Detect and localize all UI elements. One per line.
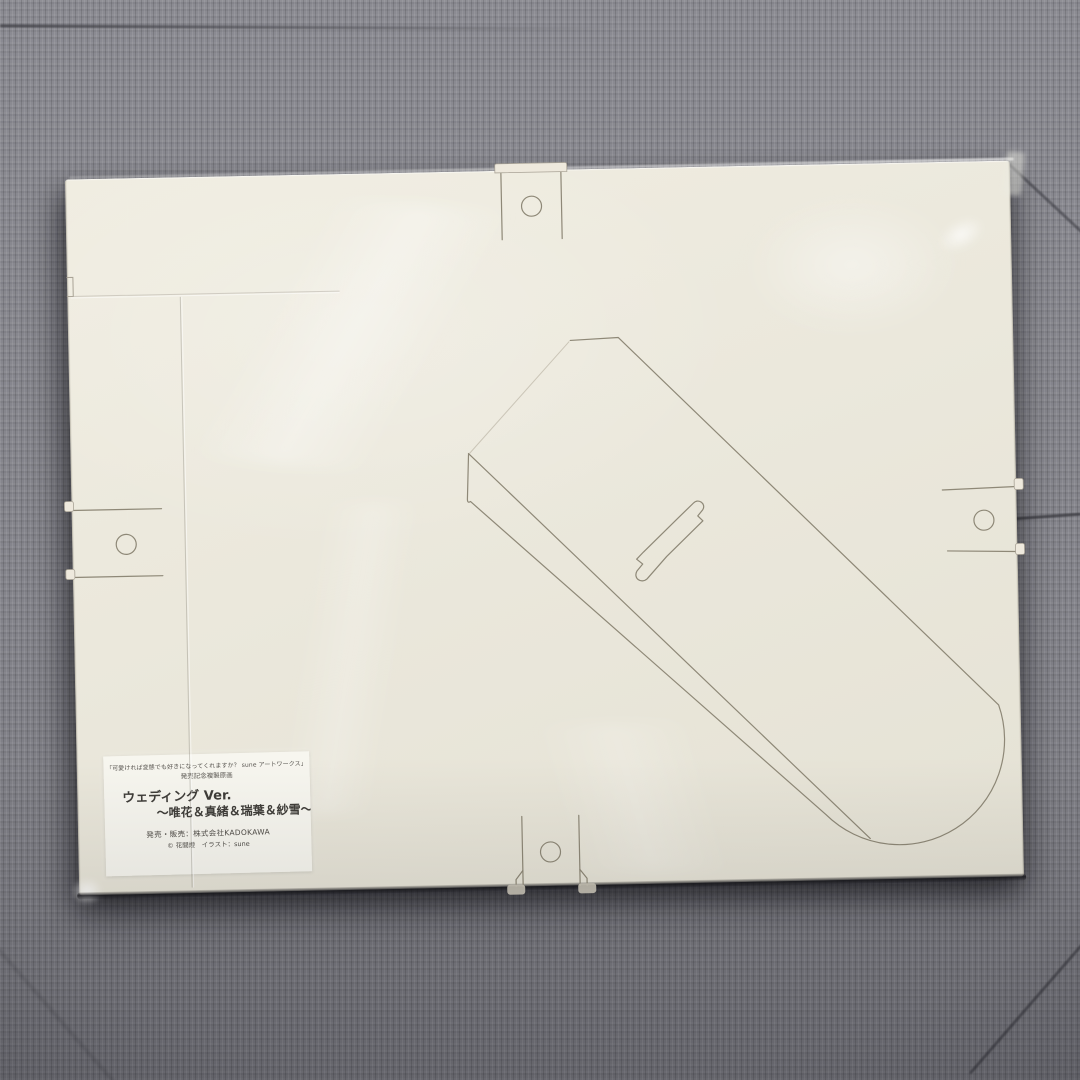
carpet-seam-bottom-right — [969, 943, 1080, 1075]
sleeve-crease-vertical-highlight — [182, 297, 194, 887]
left-tab-nub — [64, 501, 73, 511]
bottom-tab-foot — [507, 884, 525, 894]
stand-inner-cut — [468, 446, 870, 847]
sleeve-crease-vertical — [180, 297, 192, 887]
left-tab-nub — [66, 569, 75, 579]
carpet-seam-top — [0, 24, 620, 30]
right-tab-nub — [1014, 478, 1023, 489]
bottom-tab-hole — [540, 842, 560, 862]
right-tab-cut — [942, 487, 1017, 553]
right-tab-nub — [1015, 543, 1024, 554]
left-edge-notch-cut — [67, 277, 73, 296]
die-cut-linework — [65, 161, 1024, 896]
top-tab-hole — [521, 196, 541, 216]
top-tab-cut — [501, 170, 562, 240]
left-tab-cut — [72, 509, 163, 578]
top-tab-nub — [495, 162, 567, 172]
left-tab-hole — [116, 534, 136, 554]
latch-cutout — [634, 501, 705, 581]
bottom-tab-cut — [522, 815, 580, 886]
carpet-seam-bottom-left — [0, 939, 116, 1080]
bottom-tab-foot — [578, 883, 596, 893]
photo-scene: 「可愛ければ変態でも好きになってくれますか？ sune アートワークス」 発売記… — [0, 0, 1080, 1080]
right-tab-hole — [974, 510, 994, 530]
bottom-tab-feet-cut — [516, 869, 587, 886]
carpet-seam-right — [1013, 513, 1080, 521]
stand-fold-crease — [467, 341, 571, 453]
stand-outline-cut — [464, 330, 1006, 853]
art-board: 「可愛ければ変態でも好きになってくれますか？ sune アートワークス」 発売記… — [65, 161, 1024, 896]
